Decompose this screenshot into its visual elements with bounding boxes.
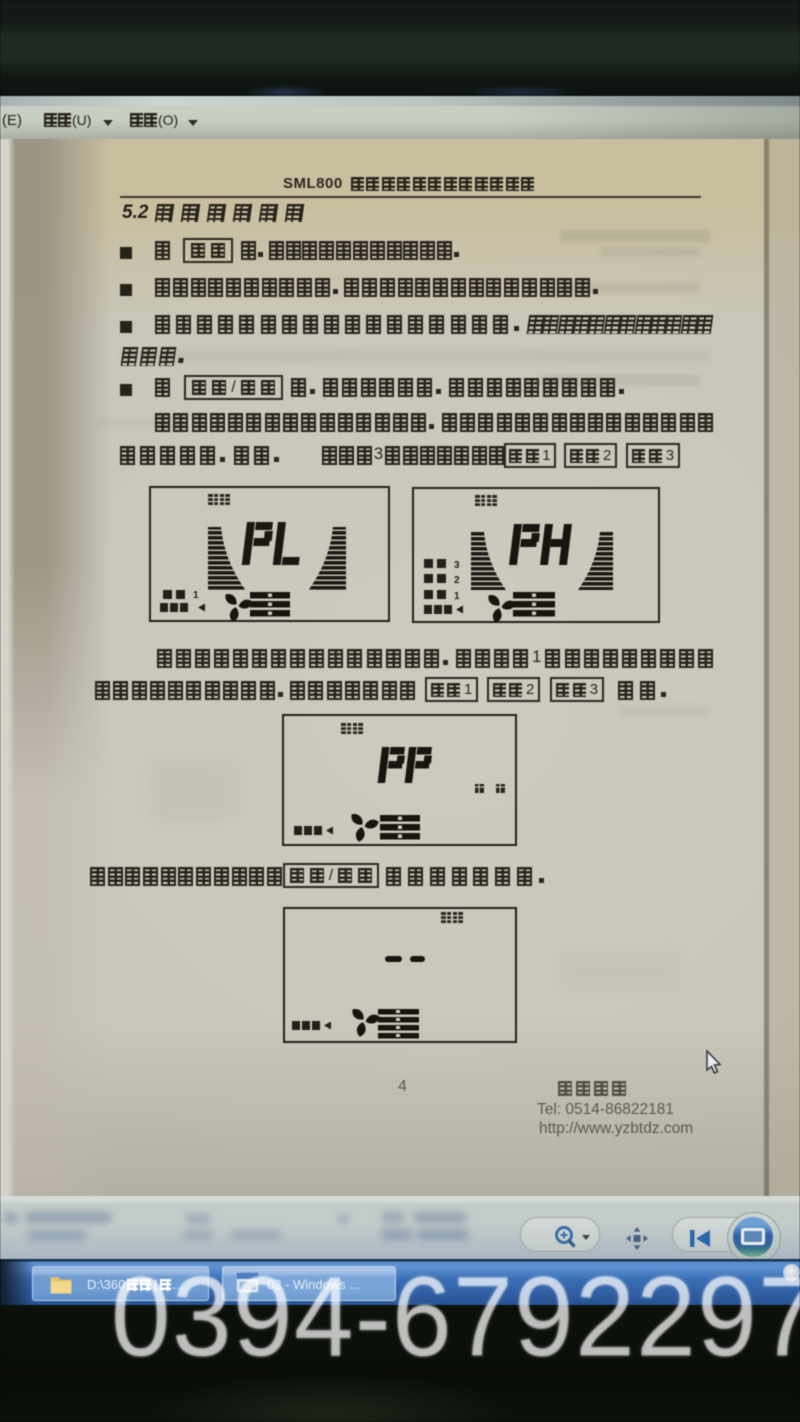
svg-text:2: 2 <box>454 575 460 586</box>
svg-text:3: 3 <box>454 560 460 571</box>
svg-text:1: 1 <box>454 591 460 602</box>
svg-text:1: 1 <box>193 590 199 601</box>
